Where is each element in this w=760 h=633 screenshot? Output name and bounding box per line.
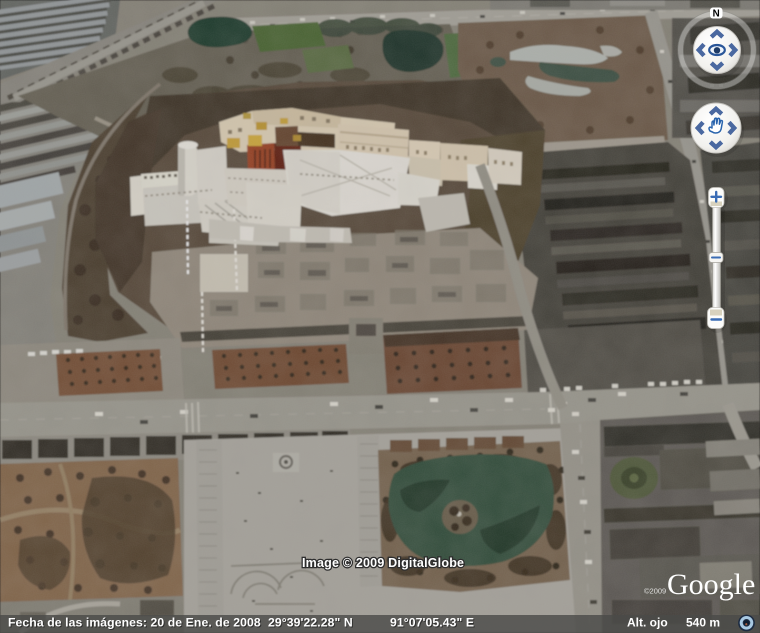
svg-text:Fecha de las imágenes: 20 de E: Fecha de las imágenes: 20 de Ene. de 200… (8, 616, 261, 630)
svg-text:Google: Google (667, 568, 755, 601)
svg-text:29°39'22.28" N: 29°39'22.28" N (268, 616, 353, 630)
svg-text:Image © 2009 DigitalGlobe: Image © 2009 DigitalGlobe (302, 556, 464, 570)
svg-text:91°07'05.43" E: 91°07'05.43" E (390, 616, 474, 630)
svg-text:N: N (713, 9, 720, 20)
svg-text:540 m: 540 m (686, 616, 720, 630)
svg-text:©2009: ©2009 (644, 587, 666, 596)
svg-text:Alt. ojo: Alt. ojo (627, 616, 668, 630)
